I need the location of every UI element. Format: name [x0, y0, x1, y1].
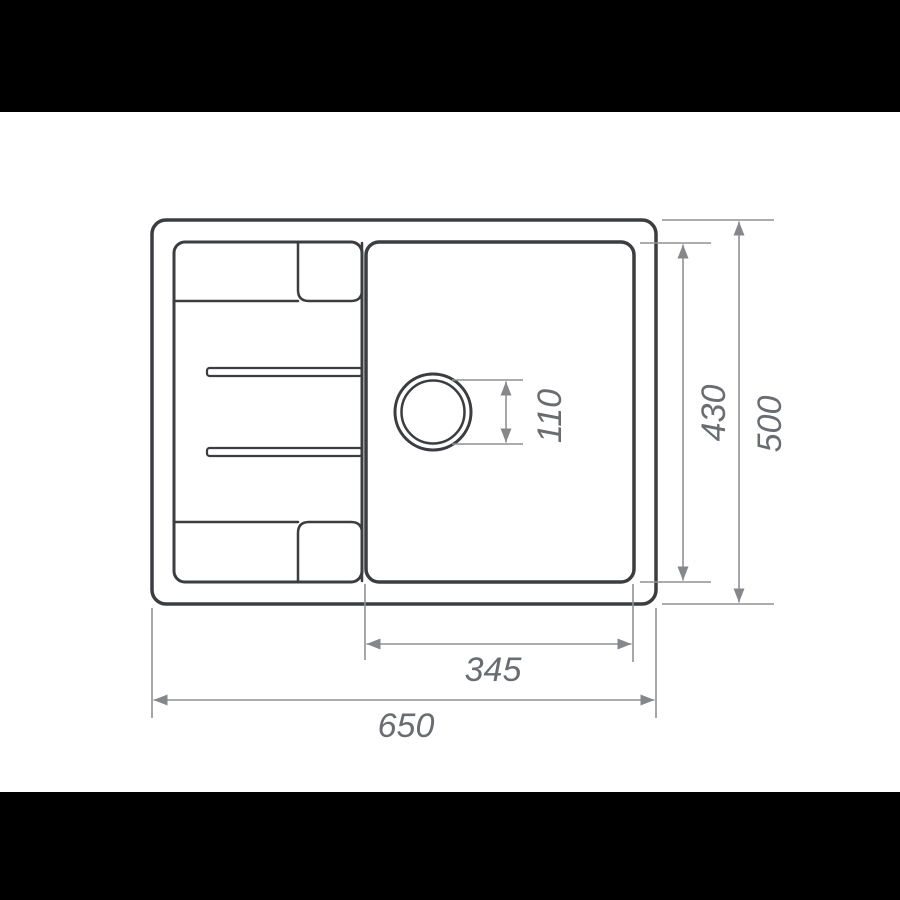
dimension-label-430: 430 [695, 385, 733, 442]
dimension-label-110: 110 [531, 389, 569, 443]
letterboxed-canvas: 110 430 500 345 650 [0, 0, 900, 900]
dimension-label-500: 500 [751, 396, 789, 453]
dimension-label-650: 650 [378, 707, 435, 745]
sink-dimension-drawing: 110 430 500 345 650 [0, 0, 900, 900]
dimension-label-345: 345 [465, 651, 522, 689]
